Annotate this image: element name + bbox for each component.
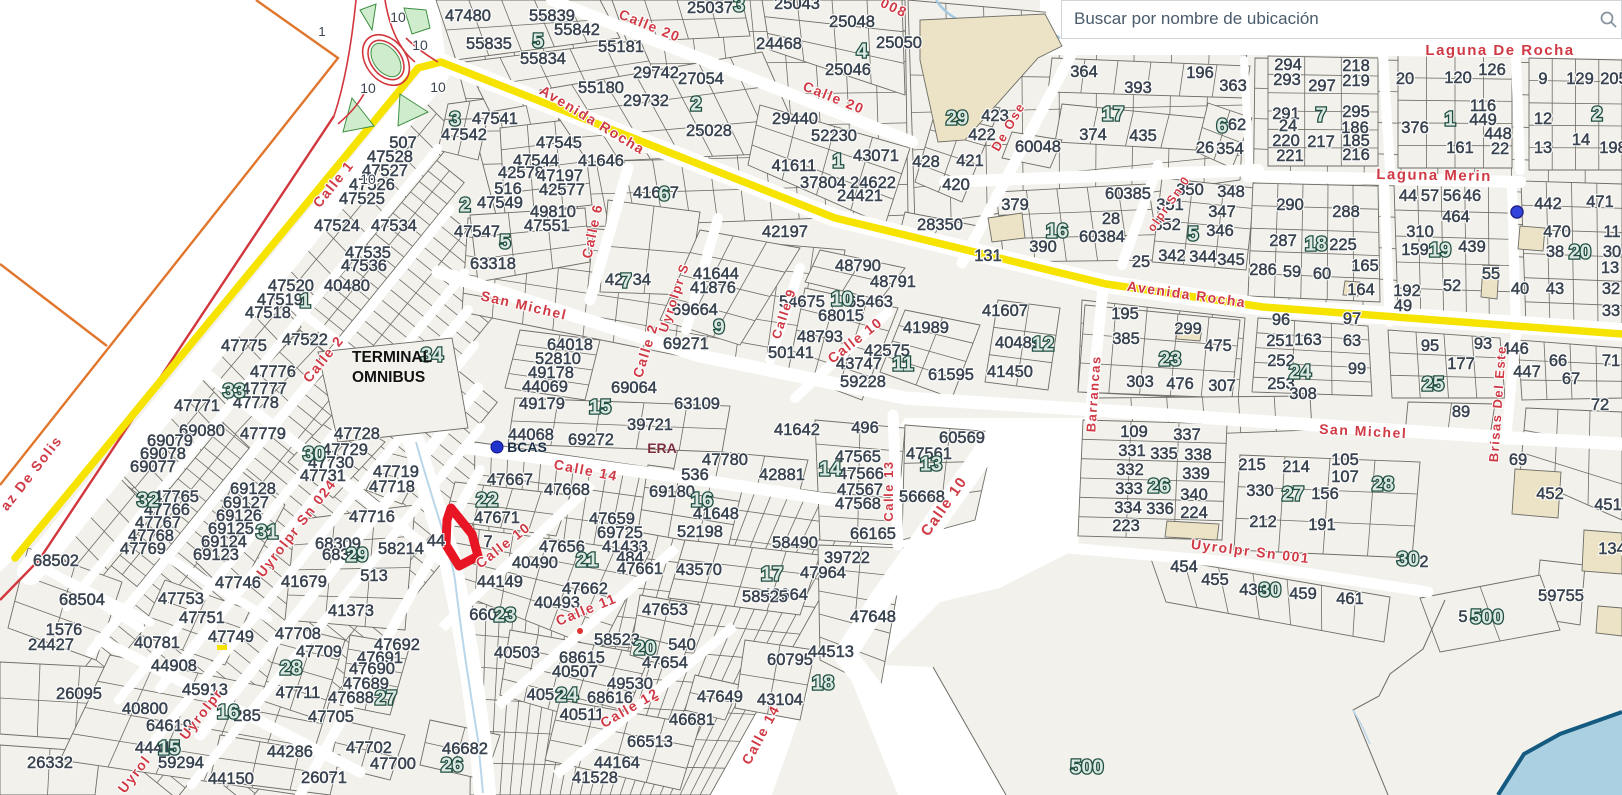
svg-text:47771: 47771 [174, 397, 220, 415]
svg-text:42881: 42881 [759, 466, 805, 484]
svg-text:10: 10 [360, 80, 376, 96]
svg-text:41646: 41646 [578, 152, 624, 170]
svg-text:19: 19 [1429, 240, 1451, 262]
svg-text:95: 95 [1421, 337, 1439, 355]
svg-text:47661: 47661 [617, 560, 663, 578]
svg-text:63109: 63109 [674, 395, 720, 413]
svg-text:24427: 24427 [28, 636, 74, 654]
svg-text:165: 165 [1351, 257, 1379, 275]
svg-text:67: 67 [1562, 370, 1580, 388]
svg-text:66165: 66165 [850, 525, 896, 543]
svg-text:38: 38 [1546, 243, 1564, 261]
svg-text:62: 62 [1228, 116, 1246, 134]
svg-text:379: 379 [1001, 196, 1029, 214]
svg-text:20: 20 [1569, 242, 1591, 264]
svg-text:25: 25 [1422, 374, 1444, 396]
svg-text:26071: 26071 [301, 769, 347, 787]
svg-text:28: 28 [280, 658, 302, 680]
svg-text:156: 156 [1311, 485, 1339, 503]
svg-text:337: 337 [1173, 426, 1201, 444]
svg-text:191: 191 [1308, 516, 1336, 534]
svg-text:330: 330 [1246, 482, 1274, 500]
svg-text:221: 221 [1276, 147, 1304, 165]
svg-text:11: 11 [1603, 223, 1620, 241]
svg-text:41617: 41617 [633, 184, 679, 202]
svg-text:442: 442 [1534, 195, 1562, 213]
svg-text:44286: 44286 [267, 743, 313, 761]
svg-text:27: 27 [375, 688, 397, 710]
svg-text:59228: 59228 [840, 373, 886, 391]
svg-text:14: 14 [819, 459, 842, 481]
svg-text:25048: 25048 [829, 13, 875, 31]
svg-text:26332: 26332 [27, 754, 73, 772]
svg-text:47480: 47480 [445, 7, 491, 25]
svg-text:ERA: ERA [647, 440, 677, 456]
svg-text:58214: 58214 [378, 540, 424, 558]
svg-text:455: 455 [1201, 571, 1229, 589]
svg-text:55835: 55835 [466, 35, 512, 53]
svg-text:475: 475 [1204, 337, 1232, 355]
svg-text:60: 60 [1313, 265, 1331, 283]
svg-text:56: 56 [1443, 187, 1461, 205]
svg-text:363: 363 [1219, 77, 1247, 95]
svg-text:17: 17 [761, 564, 783, 586]
svg-text:126: 126 [1478, 61, 1506, 79]
svg-text:52198: 52198 [677, 523, 723, 541]
svg-text:60384: 60384 [1079, 228, 1125, 246]
svg-text:66: 66 [1549, 352, 1567, 370]
svg-text:47708: 47708 [275, 625, 321, 643]
svg-text:338: 338 [1184, 446, 1212, 464]
svg-text:23: 23 [1159, 349, 1181, 371]
svg-text:47688: 47688 [328, 689, 374, 707]
svg-text:251: 251 [1266, 332, 1294, 350]
svg-text:41528: 41528 [572, 769, 618, 787]
svg-text:44908: 44908 [151, 657, 197, 675]
svg-text:10: 10 [412, 37, 428, 53]
svg-text:134: 134 [1598, 540, 1622, 558]
svg-text:61595: 61595 [928, 366, 974, 384]
svg-text:47542: 47542 [441, 126, 487, 144]
svg-text:42197: 42197 [762, 223, 808, 241]
svg-text:225: 225 [1329, 236, 1357, 254]
svg-text:47709: 47709 [296, 643, 342, 661]
svg-text:26: 26 [1148, 476, 1170, 498]
svg-text:23: 23 [494, 605, 516, 627]
svg-text:69272: 69272 [568, 431, 614, 449]
svg-text:216: 216 [1342, 146, 1370, 164]
svg-text:24421: 24421 [837, 187, 883, 205]
svg-text:47746: 47746 [215, 574, 261, 592]
svg-text:47525: 47525 [339, 190, 385, 208]
svg-text:27054: 27054 [678, 70, 724, 88]
svg-text:60385: 60385 [1105, 185, 1151, 203]
svg-text:TERMINAL: TERMINAL [352, 349, 432, 366]
svg-text:40781: 40781 [134, 634, 180, 652]
svg-text:120: 120 [1444, 69, 1472, 87]
svg-text:47780: 47780 [702, 451, 748, 469]
svg-text:69123: 69123 [193, 546, 239, 564]
svg-text:219: 219 [1342, 72, 1370, 90]
svg-text:15: 15 [158, 738, 180, 760]
svg-text:308: 308 [1289, 385, 1317, 403]
svg-text:3: 3 [733, 0, 744, 17]
svg-text:5: 5 [1187, 224, 1198, 246]
svg-text:470: 470 [1543, 223, 1571, 241]
svg-text:10: 10 [430, 79, 446, 95]
svg-text:49179: 49179 [519, 395, 565, 413]
svg-text:513: 513 [360, 567, 388, 585]
svg-text:107: 107 [1331, 468, 1359, 486]
svg-text:Laguna Merin: Laguna Merin [1376, 166, 1492, 185]
svg-text:14: 14 [1572, 131, 1590, 149]
svg-text:1: 1 [318, 24, 325, 39]
svg-text:46: 46 [1463, 187, 1481, 205]
svg-text:471: 471 [1586, 193, 1614, 211]
svg-text:287: 287 [1269, 232, 1297, 250]
svg-text:97: 97 [1343, 310, 1361, 328]
svg-text:47518: 47518 [245, 304, 291, 322]
svg-text:196: 196 [1186, 64, 1214, 82]
svg-text:44149: 44149 [477, 573, 523, 591]
svg-text:22: 22 [476, 490, 498, 512]
svg-text:47769: 47769 [120, 540, 166, 558]
svg-text:18: 18 [812, 673, 834, 695]
svg-text:47753: 47753 [158, 590, 204, 608]
svg-text:43104: 43104 [757, 691, 803, 709]
svg-text:55: 55 [1482, 265, 1500, 283]
svg-text:41876: 41876 [690, 279, 736, 297]
svg-text:385: 385 [1112, 330, 1140, 348]
svg-text:660: 660 [469, 606, 497, 624]
svg-text:72: 72 [1591, 396, 1609, 414]
svg-text:4: 4 [856, 41, 868, 63]
svg-text:58525: 58525 [742, 588, 788, 606]
svg-text:47668: 47668 [544, 481, 590, 499]
svg-text:40507: 40507 [552, 663, 598, 681]
svg-text:69271: 69271 [663, 335, 709, 353]
svg-text:299: 299 [1174, 320, 1202, 338]
svg-text:Laguna De Rocha: Laguna De Rocha [1425, 42, 1574, 59]
svg-text:OMNIBUS: OMNIBUS [352, 369, 425, 386]
svg-text:340: 340 [1180, 486, 1208, 504]
svg-text:47749: 47749 [208, 628, 254, 646]
svg-text:55834: 55834 [520, 50, 566, 68]
svg-text:28: 28 [1372, 474, 1394, 496]
svg-text:348: 348 [1217, 183, 1245, 201]
svg-text:286: 286 [1249, 261, 1277, 279]
svg-text:3: 3 [449, 109, 460, 131]
svg-text:33: 33 [223, 381, 245, 403]
svg-text:105: 105 [1331, 451, 1359, 469]
svg-text:33: 33 [1602, 302, 1620, 320]
svg-text:24: 24 [556, 685, 579, 707]
svg-text:9: 9 [713, 317, 724, 339]
svg-text:13: 13 [1534, 139, 1552, 157]
svg-text:25043: 25043 [774, 0, 820, 13]
svg-text:57: 57 [1421, 187, 1439, 205]
svg-text:63: 63 [1343, 332, 1361, 350]
svg-text:496: 496 [851, 419, 879, 437]
svg-text:59: 59 [1283, 263, 1301, 281]
svg-text:47524: 47524 [314, 217, 360, 235]
svg-text:47964: 47964 [800, 564, 846, 582]
svg-text:44069: 44069 [522, 378, 568, 396]
svg-text:342: 342 [1158, 247, 1186, 265]
svg-text:40511: 40511 [560, 706, 605, 724]
svg-text:109: 109 [1120, 423, 1148, 441]
svg-text:24468: 24468 [756, 35, 802, 53]
svg-text:69077: 69077 [130, 458, 176, 476]
svg-text:66513: 66513 [627, 733, 673, 751]
svg-text:48791: 48791 [870, 273, 916, 291]
svg-text:71: 71 [1602, 352, 1620, 370]
svg-text:96: 96 [1272, 311, 1290, 329]
svg-text:28350: 28350 [917, 216, 963, 234]
svg-text:7: 7 [1315, 105, 1326, 127]
svg-text:39721: 39721 [627, 416, 673, 434]
svg-text:476: 476 [1166, 375, 1194, 393]
svg-text:336: 336 [1146, 500, 1174, 518]
svg-text:346: 346 [1206, 222, 1234, 240]
svg-text:439: 439 [1458, 238, 1486, 256]
svg-text:59755: 59755 [1538, 587, 1584, 605]
svg-text:15: 15 [589, 397, 611, 419]
svg-text:41611: 41611 [772, 157, 817, 175]
svg-text:25: 25 [1132, 253, 1150, 271]
svg-text:68502: 68502 [33, 552, 79, 570]
svg-text:16: 16 [691, 490, 713, 512]
svg-text:25050: 25050 [876, 34, 922, 52]
svg-text:47716: 47716 [349, 508, 395, 526]
svg-text:47522: 47522 [282, 331, 328, 349]
svg-text:47776: 47776 [250, 363, 296, 381]
svg-text:129: 129 [1566, 70, 1594, 88]
svg-text:41989: 41989 [903, 319, 949, 337]
svg-text:12: 12 [1032, 334, 1054, 356]
svg-text:217: 217 [1307, 133, 1335, 151]
svg-text:464: 464 [1442, 208, 1470, 226]
svg-text:198: 198 [1599, 139, 1622, 157]
svg-text:500: 500 [1070, 757, 1103, 779]
svg-text:47711: 47711 [276, 684, 321, 702]
svg-text:10: 10 [831, 289, 853, 311]
svg-text:290: 290 [1276, 196, 1304, 214]
svg-text:131: 131 [974, 247, 1002, 265]
svg-text:44513: 44513 [808, 643, 854, 661]
svg-text:47545: 47545 [536, 134, 582, 152]
svg-text:6: 6 [1216, 116, 1227, 138]
svg-text:47705: 47705 [308, 708, 354, 726]
svg-text:461: 461 [1336, 590, 1364, 608]
svg-text:1: 1 [832, 151, 843, 173]
svg-text:99: 99 [1348, 360, 1366, 378]
svg-text:40503: 40503 [494, 644, 540, 662]
svg-text:447: 447 [1513, 363, 1541, 381]
svg-text:13: 13 [920, 454, 942, 476]
svg-text:10: 10 [390, 9, 406, 25]
svg-text:421: 421 [956, 152, 984, 170]
svg-text:47547: 47547 [454, 223, 500, 241]
svg-text:215: 215 [1238, 456, 1266, 474]
svg-text:55181: 55181 [598, 38, 644, 56]
svg-text:7: 7 [620, 271, 631, 293]
svg-text:454: 454 [1170, 558, 1198, 576]
svg-text:18: 18 [1305, 234, 1327, 256]
svg-text:47653: 47653 [642, 601, 688, 619]
svg-text:63318: 63318 [470, 255, 516, 273]
svg-text:420: 420 [942, 176, 970, 194]
svg-text:5: 5 [499, 232, 510, 254]
svg-text:2: 2 [1419, 553, 1428, 571]
svg-text:40: 40 [1511, 280, 1529, 298]
svg-text:47536: 47536 [341, 257, 387, 275]
svg-text:25028: 25028 [686, 122, 732, 140]
svg-text:20: 20 [634, 638, 656, 660]
svg-text:214: 214 [1282, 458, 1310, 476]
svg-text:364: 364 [1070, 63, 1098, 81]
svg-text:28: 28 [1102, 210, 1120, 228]
svg-text:428: 428 [912, 153, 940, 171]
svg-text:6: 6 [658, 184, 669, 206]
svg-text:9: 9 [1538, 70, 1547, 88]
svg-text:2: 2 [459, 195, 470, 217]
svg-text:52230: 52230 [811, 127, 857, 145]
svg-text:307: 307 [1208, 377, 1236, 395]
svg-text:163: 163 [1294, 331, 1322, 349]
svg-text:344: 344 [1189, 248, 1217, 266]
svg-text:331: 331 [1118, 442, 1146, 460]
svg-text:44: 44 [427, 532, 445, 550]
svg-text:293: 293 [1273, 71, 1301, 89]
svg-text:288: 288 [1332, 203, 1360, 221]
svg-text:47667: 47667 [487, 471, 533, 489]
svg-text:47649: 47649 [697, 688, 743, 706]
svg-text:32: 32 [1602, 280, 1620, 298]
svg-text:32: 32 [137, 490, 159, 512]
svg-text:31: 31 [256, 522, 278, 544]
svg-text:24: 24 [1289, 362, 1312, 384]
svg-text:334: 334 [1114, 499, 1142, 517]
svg-text:60048: 60048 [1015, 138, 1061, 156]
svg-text:21: 21 [576, 550, 598, 572]
svg-text:68504: 68504 [59, 591, 105, 609]
svg-text:47775: 47775 [221, 337, 267, 355]
svg-text:43: 43 [1546, 280, 1564, 298]
svg-text:11: 11 [892, 354, 913, 376]
svg-text:25037: 25037 [687, 0, 733, 17]
svg-text:43071: 43071 [853, 147, 899, 165]
svg-text:Calle 13: Calle 13 [881, 460, 896, 521]
svg-text:5: 5 [1458, 608, 1467, 626]
svg-text:5: 5 [532, 31, 543, 53]
svg-text:55180: 55180 [578, 79, 624, 97]
svg-text:22: 22 [1491, 140, 1509, 158]
svg-text:29: 29 [346, 545, 368, 567]
svg-text:47671: 47671 [474, 509, 520, 527]
svg-text:41373: 41373 [328, 602, 374, 620]
svg-text:30: 30 [1397, 549, 1419, 571]
svg-text:10: 10 [360, 171, 376, 187]
svg-text:224: 224 [1180, 504, 1208, 522]
svg-text:29440: 29440 [772, 110, 818, 128]
svg-text:25046: 25046 [825, 61, 871, 79]
svg-text:347: 347 [1208, 203, 1236, 221]
svg-text:2: 2 [690, 94, 701, 116]
svg-text:177: 177 [1447, 355, 1475, 373]
svg-text:1: 1 [299, 291, 310, 313]
svg-text:47565: 47565 [835, 448, 881, 466]
svg-text:49: 49 [1394, 297, 1412, 315]
svg-text:69: 69 [1509, 451, 1527, 469]
svg-text:41679: 41679 [281, 573, 327, 591]
svg-text:26: 26 [1196, 139, 1214, 157]
svg-text:332: 332 [1116, 461, 1144, 479]
svg-text:69180: 69180 [649, 483, 695, 501]
svg-text:29: 29 [946, 108, 968, 130]
svg-text:58490: 58490 [772, 534, 818, 552]
svg-text:93: 93 [1474, 335, 1492, 353]
svg-text:335: 335 [1150, 445, 1178, 463]
svg-text:55842: 55842 [554, 21, 600, 39]
svg-text:89: 89 [1452, 403, 1470, 421]
svg-text:339: 339 [1182, 465, 1210, 483]
svg-text:2: 2 [1591, 104, 1602, 126]
svg-text:16: 16 [1046, 221, 1068, 243]
svg-text:60795: 60795 [767, 651, 813, 669]
svg-text:47568: 47568 [835, 495, 881, 513]
svg-text:40480: 40480 [324, 277, 370, 295]
svg-text:435: 435 [1129, 127, 1157, 145]
svg-text:26095: 26095 [56, 685, 102, 703]
svg-text:47779: 47779 [240, 425, 286, 443]
svg-text:452: 452 [1536, 485, 1564, 503]
svg-text:195: 195 [1111, 305, 1139, 323]
svg-text:333: 333 [1115, 480, 1143, 498]
svg-text:345: 345 [1217, 251, 1245, 269]
svg-text:205: 205 [1600, 70, 1622, 88]
svg-text:540: 540 [668, 636, 696, 654]
svg-text:459: 459 [1289, 585, 1317, 603]
svg-text:20: 20 [1396, 70, 1414, 88]
svg-text:13: 13 [1601, 259, 1619, 277]
svg-text:303: 303 [1126, 373, 1154, 391]
svg-text:30: 30 [303, 444, 325, 466]
svg-text:354: 354 [1216, 140, 1244, 158]
svg-text:47700: 47700 [370, 755, 416, 773]
svg-text:41607: 41607 [982, 302, 1028, 320]
svg-text:29732: 29732 [623, 92, 669, 110]
svg-text:16: 16 [217, 702, 239, 724]
svg-text:47549: 47549 [477, 194, 523, 212]
svg-text:164: 164 [1347, 281, 1375, 299]
svg-text:46681: 46681 [669, 711, 715, 729]
svg-text:26: 26 [441, 755, 463, 777]
svg-text:43570: 43570 [676, 561, 722, 579]
svg-text:47534: 47534 [371, 217, 417, 235]
svg-text:47648: 47648 [850, 608, 896, 626]
svg-text:451: 451 [1594, 496, 1622, 514]
svg-text:223: 223 [1112, 517, 1140, 535]
svg-text:29742: 29742 [633, 64, 679, 82]
svg-text:30: 30 [1259, 580, 1281, 602]
svg-text:50141: 50141 [768, 344, 814, 362]
svg-text:BCAS: BCAS [507, 439, 547, 455]
svg-text:27: 27 [1282, 484, 1304, 506]
svg-text:41450: 41450 [987, 363, 1033, 381]
svg-text:159: 159 [1401, 241, 1429, 259]
svg-text:161: 161 [1446, 139, 1474, 157]
